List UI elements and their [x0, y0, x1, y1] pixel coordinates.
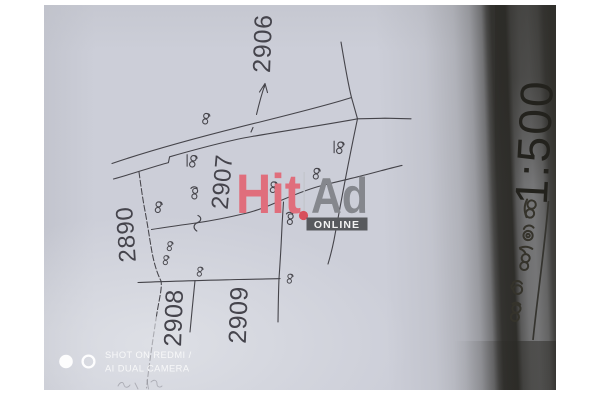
svg-text:AI DUAL CAMERA: AI DUAL CAMERA	[105, 364, 190, 374]
svg-text:Ad: Ad	[311, 168, 368, 224]
svg-text:SHOT ON REDMI /: SHOT ON REDMI /	[105, 350, 192, 360]
svg-text:1:500: 1:500	[505, 78, 563, 206]
svg-text:2908: 2908	[159, 289, 189, 347]
svg-text:2909: 2909	[224, 286, 254, 344]
svg-text:ONLINE: ONLINE	[314, 219, 360, 231]
svg-text:2907: 2907	[207, 153, 239, 210]
svg-text:Hit: Hit	[236, 162, 301, 225]
svg-text:2906: 2906	[248, 14, 278, 74]
svg-text:2890: 2890	[111, 206, 142, 264]
